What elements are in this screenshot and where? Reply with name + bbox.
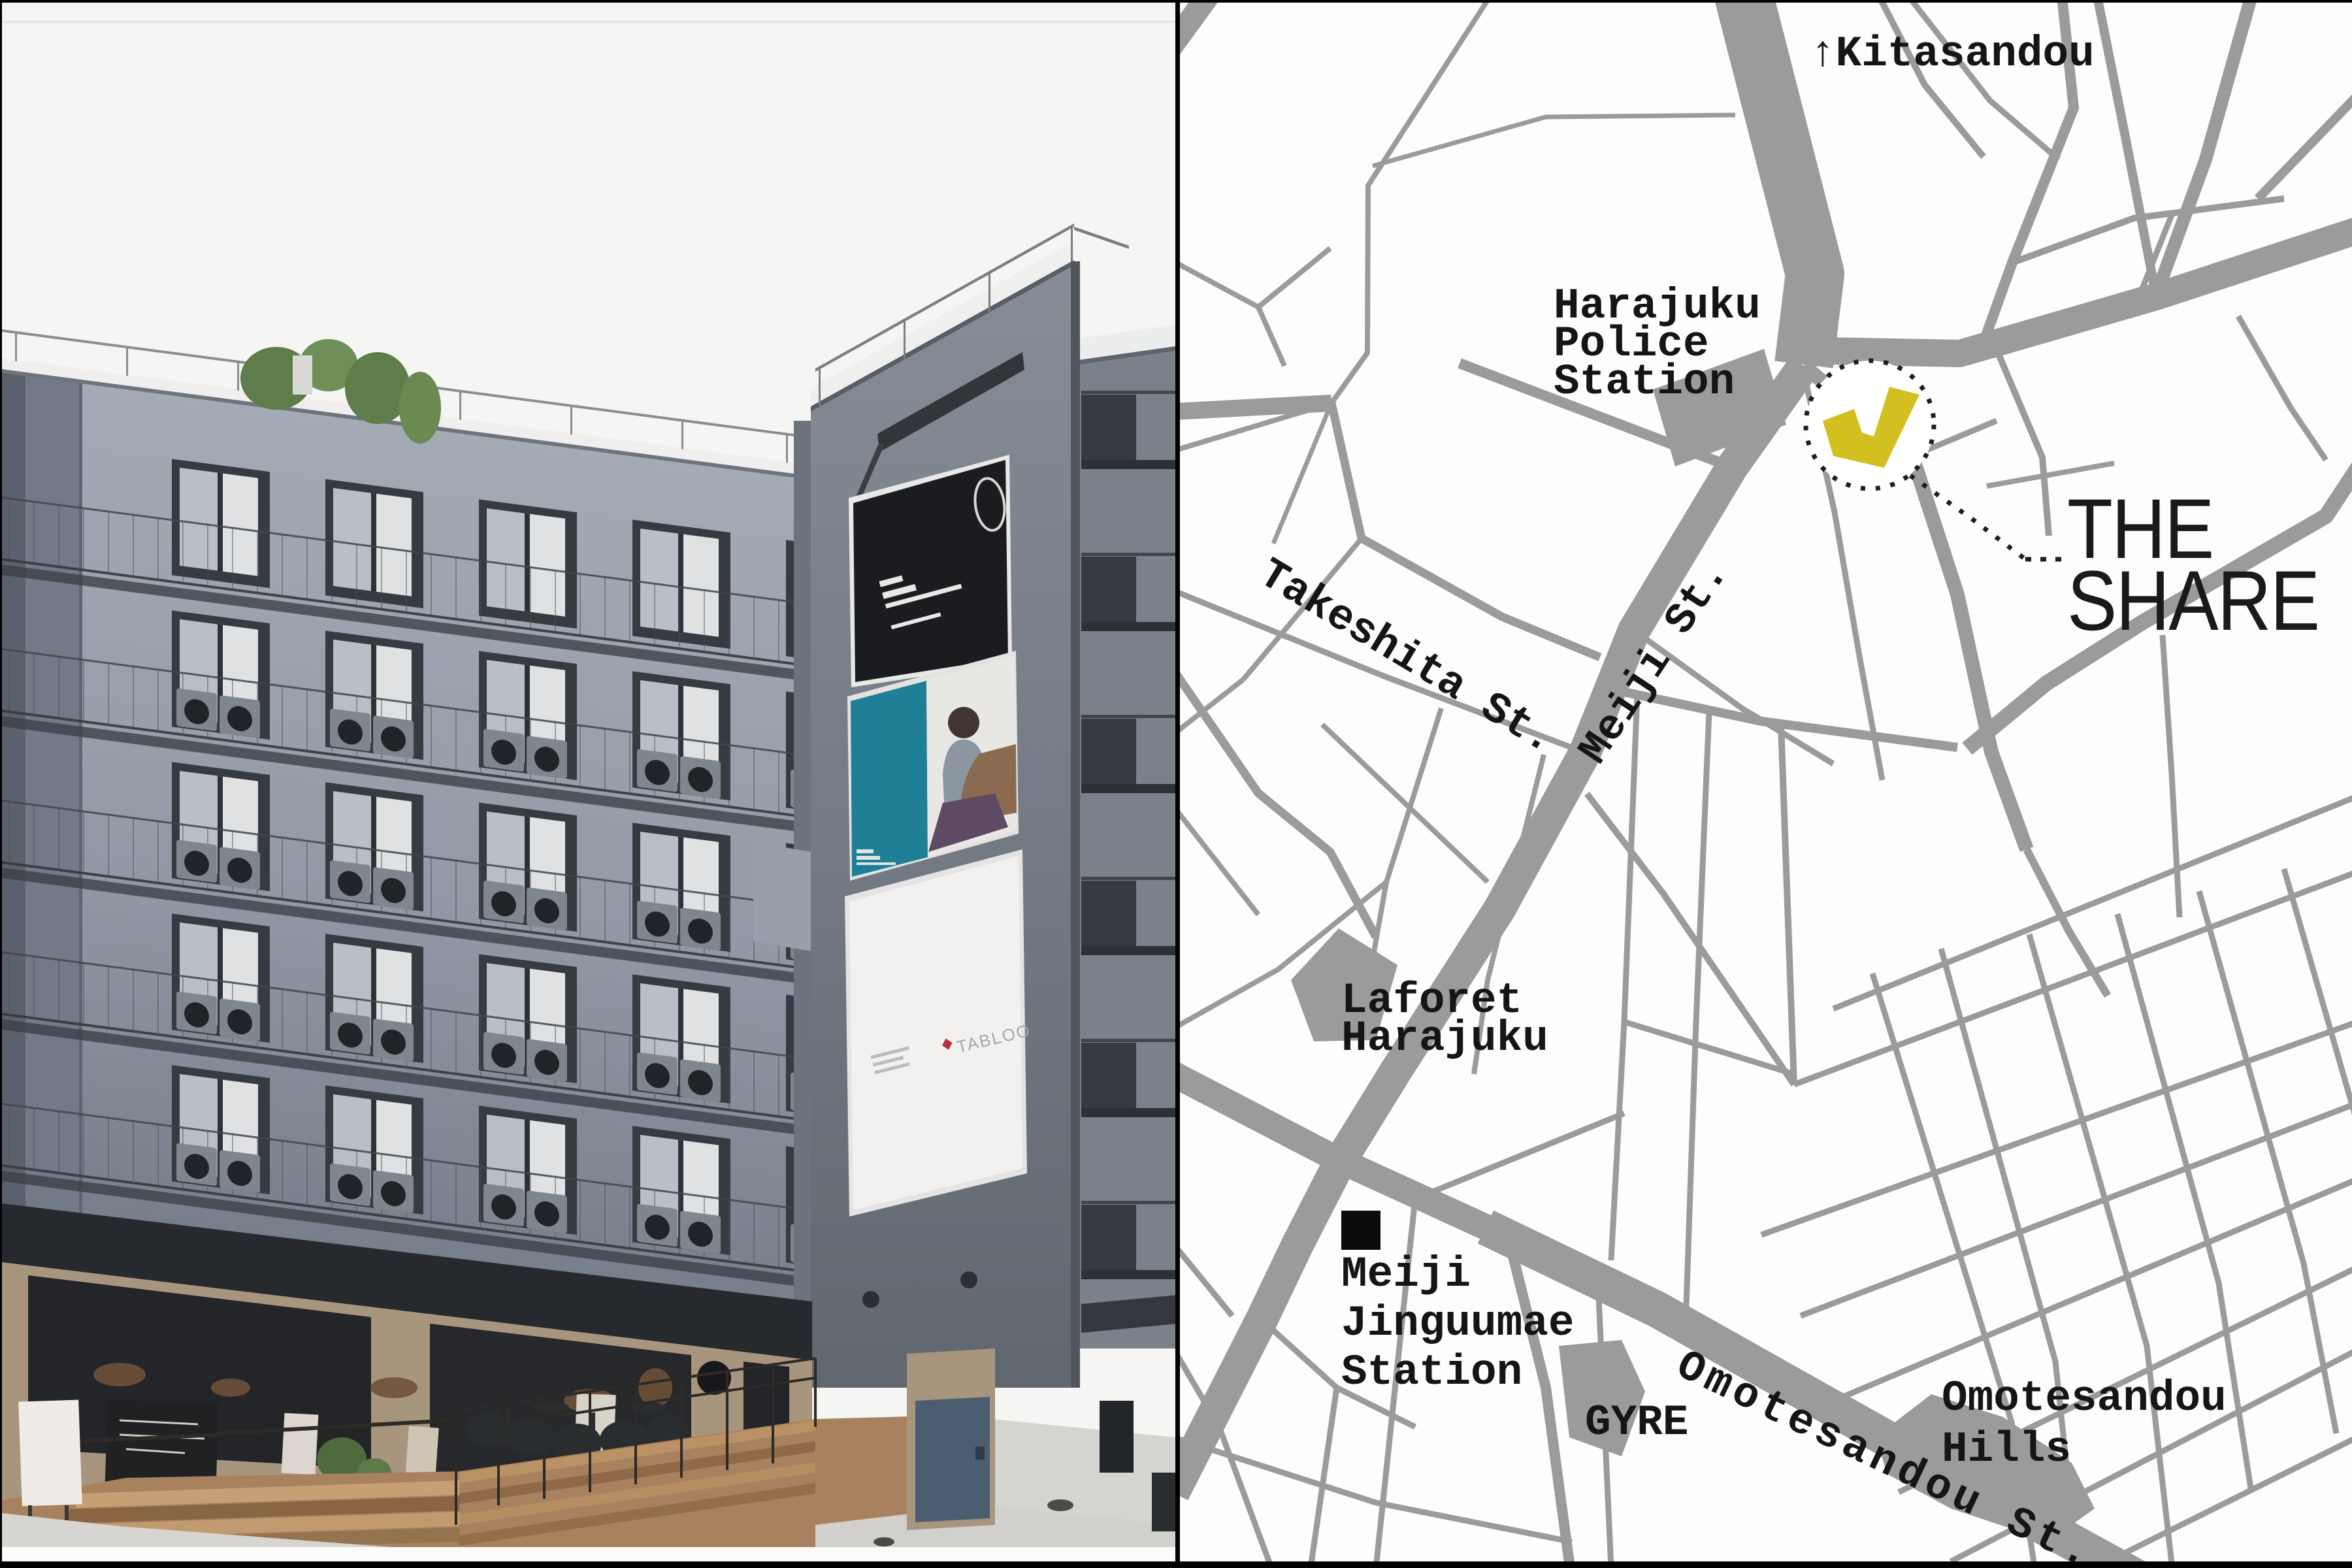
svg-text:Harajuku: Harajuku — [1341, 1014, 1548, 1063]
svg-text:Station: Station — [1341, 1348, 1522, 1397]
svg-text:GYRE: GYRE — [1585, 1398, 1688, 1447]
svg-text:Jinguumae: Jinguumae — [1341, 1299, 1574, 1348]
svg-text:Hills: Hills — [1942, 1425, 2071, 1474]
svg-text:Station: Station — [1554, 357, 1735, 406]
svg-text:SHARE: SHARE — [2067, 553, 2319, 647]
svg-text:↑Kitasandou: ↑Kitasandou — [1810, 29, 2095, 78]
svg-text:Omotesandou: Omotesandou — [1942, 1374, 2227, 1423]
svg-text:Meiji: Meiji — [1341, 1250, 1471, 1299]
